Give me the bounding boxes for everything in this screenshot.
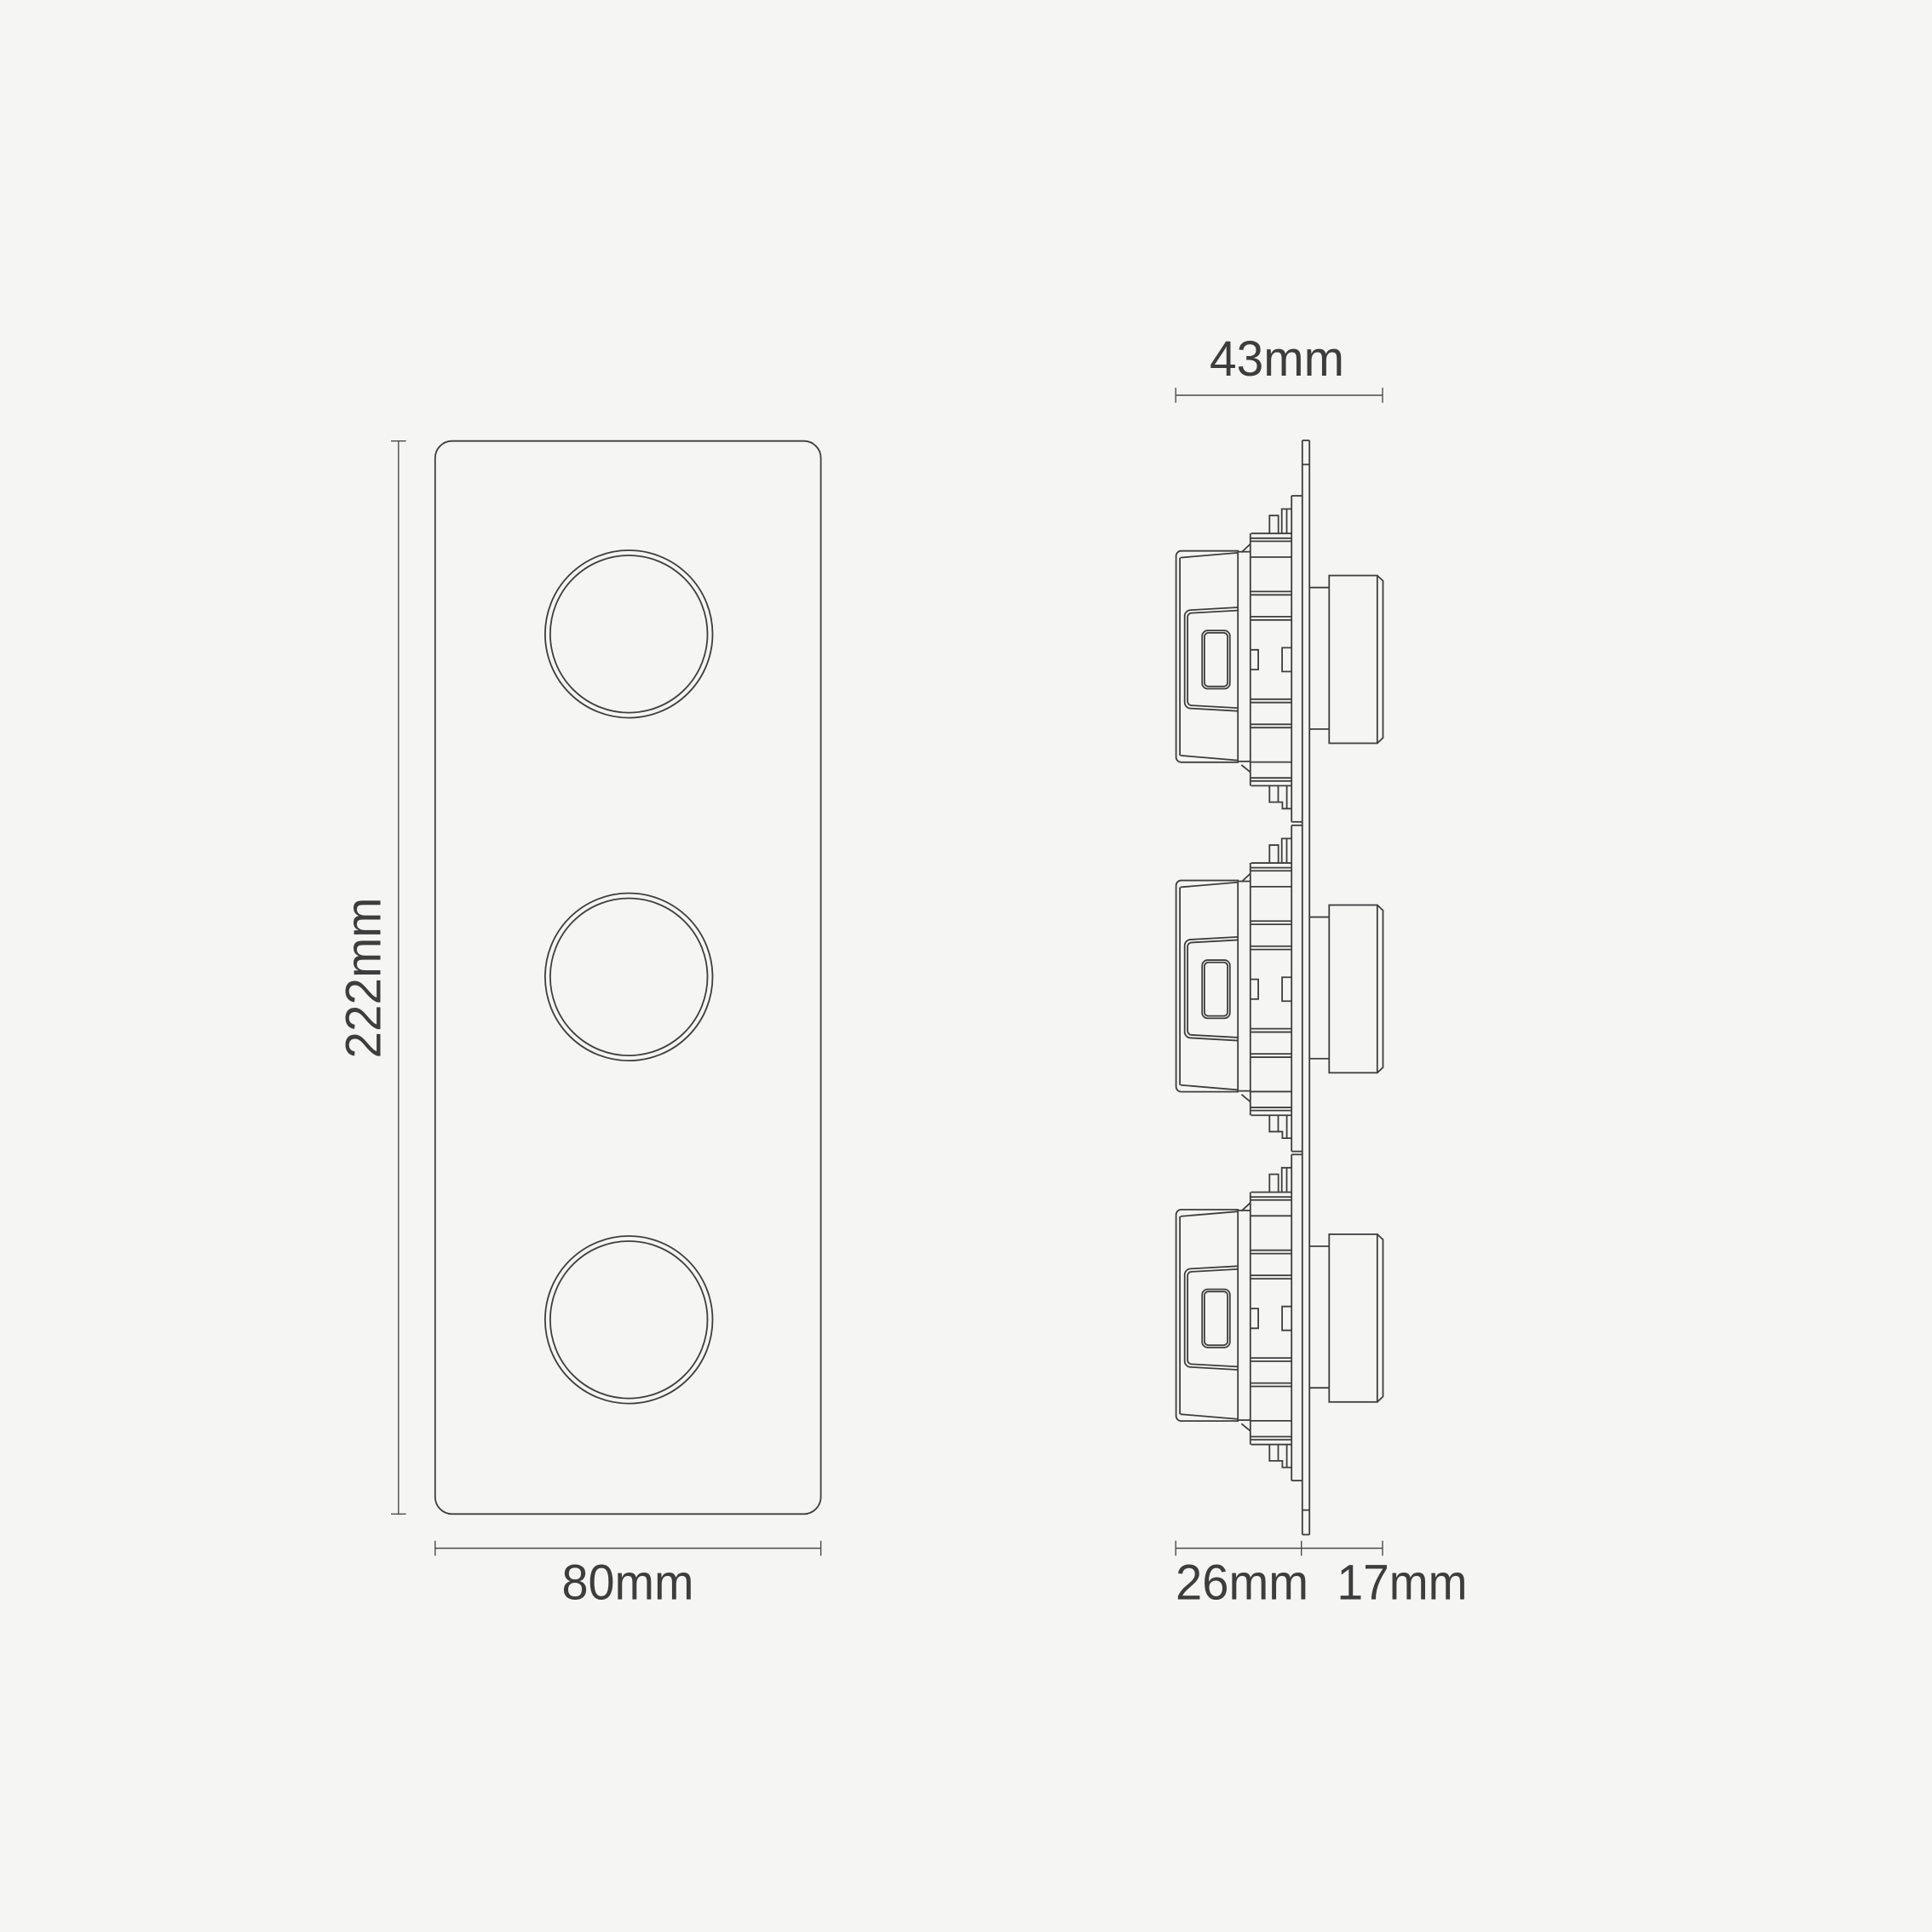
svg-text:17mm: 17mm [1337, 1555, 1468, 1611]
svg-text:80mm: 80mm [562, 1555, 694, 1611]
svg-text:222mm: 222mm [336, 898, 392, 1059]
svg-text:26mm: 26mm [1176, 1555, 1308, 1611]
svg-text:43mm: 43mm [1210, 331, 1344, 387]
